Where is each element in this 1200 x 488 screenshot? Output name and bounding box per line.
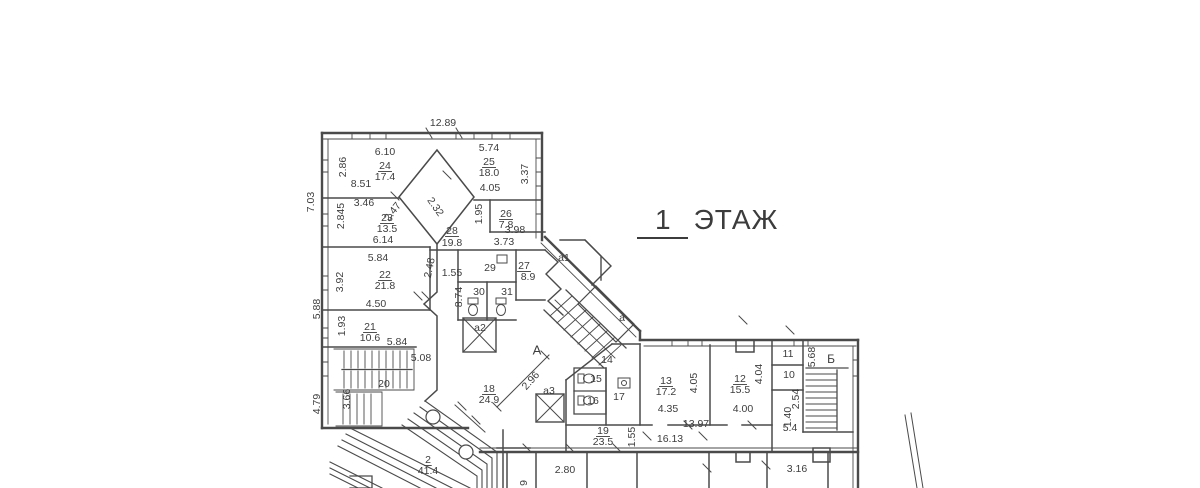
plan-label: 14 bbox=[601, 354, 613, 366]
inner-walls bbox=[322, 150, 853, 488]
plan-label: 15.5 bbox=[730, 384, 751, 396]
stairs-right-icon bbox=[806, 368, 848, 430]
plan-label: 3.16 bbox=[787, 463, 808, 475]
plan-label: 7.03 bbox=[305, 192, 317, 213]
plan-label: 4.79 bbox=[311, 394, 323, 415]
plan-label: А bbox=[533, 342, 542, 357]
plan-label: 6.10 bbox=[375, 146, 396, 158]
plan-label: 4.00 bbox=[733, 403, 754, 415]
stairs-diagonal-icon bbox=[544, 290, 626, 368]
column-icons bbox=[426, 410, 473, 459]
plan-label: 17.2 bbox=[656, 386, 677, 398]
plan-label: 2.86 bbox=[337, 157, 349, 178]
plan-label: 29 bbox=[484, 262, 496, 274]
plan-label: а3 bbox=[543, 385, 555, 397]
elevator-a3-icon bbox=[536, 394, 564, 422]
plan-label: 2.32 bbox=[424, 195, 446, 219]
plan-label: 2.96 bbox=[520, 369, 543, 392]
plan-label: 10 bbox=[783, 369, 795, 381]
labels-layer: 12.896.102417.42.868.513.462.8452313.56.… bbox=[305, 117, 835, 486]
plan-label: 19.8 bbox=[442, 237, 463, 249]
plan-label: 5.84 bbox=[387, 336, 408, 348]
plan-label: 3.66 bbox=[341, 389, 353, 410]
plan-label: 5.68 bbox=[806, 347, 818, 368]
plan-label: 15 bbox=[590, 373, 602, 385]
plan-label: 1.55 bbox=[626, 427, 638, 448]
plan-label: 3.46 bbox=[354, 197, 375, 209]
plan-label: 6.14 bbox=[373, 234, 394, 246]
plan-label: а1 bbox=[558, 252, 570, 264]
plan-label: 2.845 bbox=[335, 203, 347, 229]
plan-label: 2.54 bbox=[790, 389, 802, 410]
plan-label: Б bbox=[827, 352, 835, 366]
plan-label: 23.5 bbox=[593, 436, 614, 448]
room-a-walls bbox=[578, 286, 634, 342]
floor-number: 1 bbox=[637, 204, 688, 239]
plan-label: 5.88 bbox=[311, 299, 323, 320]
floor-plan-svg: 12.896.102417.42.868.513.462.8452313.56.… bbox=[0, 0, 1200, 488]
floor-plan-page: 12.896.102417.42.868.513.462.8452313.56.… bbox=[0, 0, 1200, 488]
plan-label: 11 bbox=[783, 348, 794, 360]
plan-label: 31 bbox=[501, 286, 513, 298]
plan-label: 10.6 bbox=[360, 332, 381, 344]
plan-label: 13.97 bbox=[683, 418, 709, 430]
entrance-steps bbox=[330, 401, 497, 488]
plan-label: 4.35 bbox=[658, 403, 679, 415]
plan-label: 1.55 bbox=[442, 267, 463, 279]
plan-label: 30 bbox=[473, 286, 485, 298]
plan-label: 5.74 bbox=[479, 142, 500, 154]
plan-label: 24.9 bbox=[479, 394, 500, 406]
plan-label: 21.8 bbox=[375, 280, 396, 292]
plan-label: 5.08 bbox=[411, 352, 432, 364]
plan-label: 2.48 bbox=[422, 257, 438, 280]
plan-label: 3.37 bbox=[519, 164, 531, 185]
plan-label: 8.51 bbox=[351, 178, 372, 190]
plan-label: а2 bbox=[474, 322, 486, 334]
plan-label: 8.74 bbox=[453, 287, 465, 308]
plan-label: а bbox=[619, 312, 625, 324]
plan-label: 18.0 bbox=[479, 167, 500, 179]
plan-label: 4.50 bbox=[366, 298, 387, 310]
plan-label: 16.13 bbox=[657, 433, 683, 445]
plan-label: 9 bbox=[518, 480, 530, 486]
plan-label: 2.80 bbox=[555, 464, 576, 476]
plan-label: 4.05 bbox=[480, 182, 501, 194]
plan-label: 4.04 bbox=[753, 364, 765, 385]
plan-label: 12.89 bbox=[430, 117, 456, 129]
plan-label: 20 bbox=[378, 378, 390, 390]
site-boundary-lines bbox=[905, 413, 923, 488]
plan-label: 4.05 bbox=[688, 373, 700, 394]
plan-label: 17 bbox=[613, 391, 625, 403]
plan-label: 1.95 bbox=[473, 204, 485, 225]
plan-label: 17.4 bbox=[375, 171, 396, 183]
plan-label: 16 bbox=[587, 395, 599, 407]
plan-label: 5.84 bbox=[368, 252, 389, 264]
plan-label: 5.4 bbox=[783, 422, 798, 434]
plan-label: 3.92 bbox=[334, 272, 346, 293]
plan-label: 41.4 bbox=[418, 465, 439, 477]
floor-word: ЭТАЖ bbox=[688, 204, 779, 236]
plan-label: 28 bbox=[446, 225, 458, 237]
stairs-left-icon bbox=[334, 349, 414, 426]
floor-title: 1ЭТАЖ bbox=[637, 204, 778, 239]
plan-label: 3.73 bbox=[494, 236, 515, 248]
plan-label: 1.93 bbox=[336, 316, 348, 337]
plan-label: 8.9 bbox=[521, 271, 536, 283]
plan-label: 3.98 bbox=[505, 224, 526, 236]
